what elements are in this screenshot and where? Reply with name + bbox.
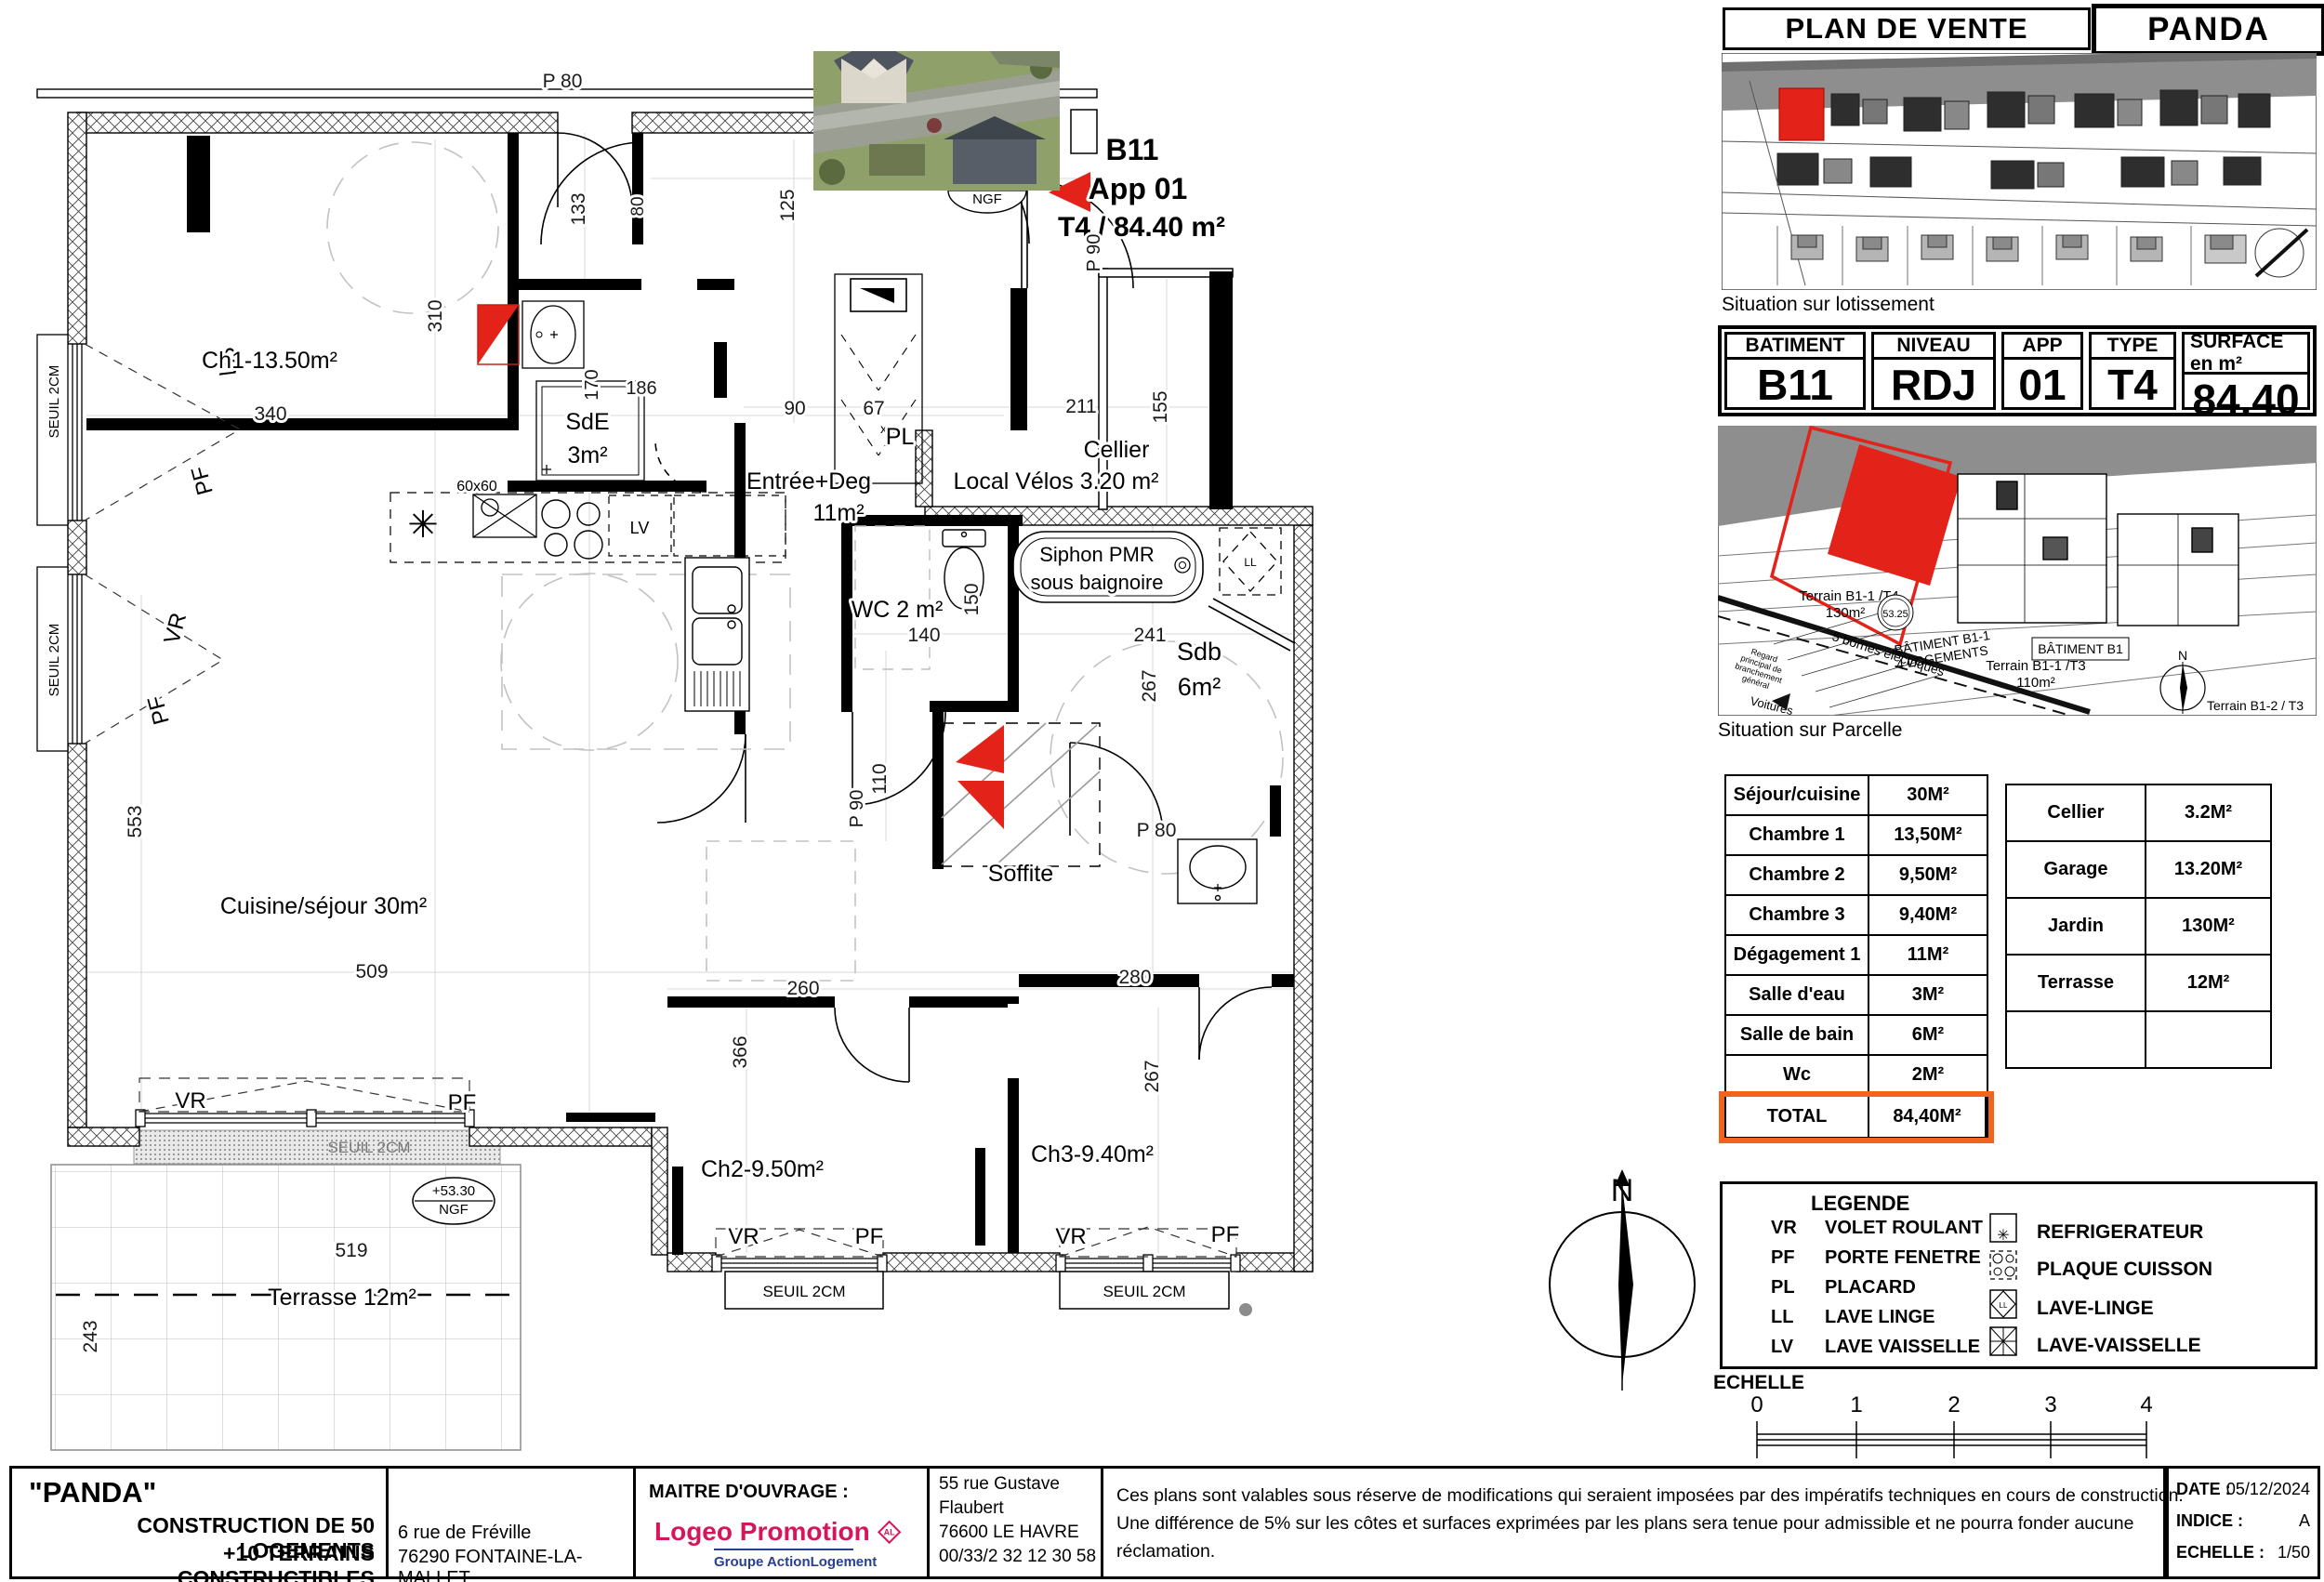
situation-lotissement-map	[1722, 53, 2317, 290]
table-row: Jardin130M²	[2007, 899, 2270, 956]
scale-tick: 1	[1850, 1392, 1862, 1417]
sheet-title-text: PLAN DE VENTE	[1785, 12, 2027, 46]
apartment-number: App 01	[1089, 172, 1188, 205]
ch1-label: Ch1-13.50m²	[202, 348, 337, 374]
ll-label: LL	[1244, 556, 1257, 569]
seuil-label-west2: SEUIL 2CM	[46, 624, 62, 697]
sink-60x60-icon	[473, 494, 536, 537]
legend-label: VOLET ROULANT	[1825, 1218, 1983, 1239]
vr-label: VR	[728, 1224, 759, 1249]
row-value: 6M²	[1869, 1016, 1987, 1054]
legend-title: LEGENDE	[1811, 1192, 1909, 1216]
seuil-label-ch2: SEUIL 2CM	[762, 1283, 845, 1300]
sde-label: SdE	[565, 409, 609, 435]
disclaimer-line2: Une différence de 5% sur les côtes et su…	[1116, 1513, 2133, 1535]
legend-code: PF	[1771, 1247, 1795, 1269]
soffite-arrow-icon	[956, 725, 1004, 773]
north-compass: N	[1550, 1169, 1695, 1391]
apartment-building: B11	[1106, 133, 1159, 166]
door-p80-top: P 80	[543, 71, 583, 92]
row-label	[2007, 1012, 2146, 1067]
legend-label: PLACARD	[1825, 1277, 1916, 1299]
cooktop-legend-icon	[1990, 1251, 2016, 1279]
exterior-walls	[37, 89, 1313, 1272]
address2-line1: 55 rue Gustave	[939, 1474, 1060, 1495]
washing-machine-icon: LL	[1220, 528, 1281, 595]
dim-186: 186	[626, 378, 656, 399]
north-letter-small: N	[2178, 648, 2187, 663]
row-label: Séjour/cuisine	[1726, 776, 1869, 814]
dim-267b: 267	[1142, 1060, 1163, 1092]
dim-211: 211	[1065, 396, 1096, 417]
scale-tick: 3	[2044, 1392, 2056, 1417]
disclaimer-cell: Ces plans sont valables sous réserve de …	[1103, 1469, 2166, 1576]
table-row: Cellier3.2M²	[2007, 785, 2270, 842]
bat-value: B11	[1727, 360, 1863, 410]
legend-code: PL	[1771, 1277, 1795, 1299]
legend-code: VR	[1771, 1218, 1797, 1239]
dim-243: 243	[80, 1320, 101, 1352]
address2-cell: 55 rue Gustave Flaubert 76600 LE HAVRE 0…	[930, 1469, 1103, 1576]
cellier-area: Local Vélos 3.20 m²	[954, 468, 1159, 494]
dim-310: 310	[425, 299, 446, 332]
dim-241: 241	[1133, 625, 1166, 646]
address2-line3: 76600 LE HAVRE	[939, 1523, 1079, 1543]
row-label: Salle d'eau	[1726, 976, 1869, 1014]
row-value: 12M²	[2146, 956, 2270, 1010]
soffite-arrow-icon	[957, 781, 1004, 829]
dim-150: 150	[961, 583, 983, 615]
dim-519: 519	[335, 1240, 367, 1261]
table-row: Chambre 113,50M²	[1726, 816, 1987, 856]
terrain1-area: 130m²	[1826, 605, 1866, 621]
cellier-label: Cellier	[1084, 437, 1150, 463]
row-value: 2M²	[1869, 1056, 1987, 1094]
batiment-table: BATIMENTB11 NIVEAURDJ APP01 TYPET4 SURFA…	[1718, 325, 2317, 416]
wc-label: WC 2 m²	[852, 597, 944, 623]
meta-cell: DATE : 05/12/2024 INDICE : A ECHELLE : 1…	[2166, 1469, 2317, 1576]
legend-code: LL	[1771, 1307, 1793, 1328]
disclaimer-line3: réclamation.	[1116, 1541, 1215, 1562]
row-label: TOTAL	[1726, 1096, 1869, 1137]
pf-label: PF	[143, 693, 175, 728]
terrace-label: Terrasse 12m²	[268, 1285, 416, 1311]
plan-de-vente-sheet: +53.30 NGF Terrasse 12m² 519 243 SEUIL 2…	[0, 0, 2324, 1582]
dishwasher-legend-icon	[1990, 1327, 2016, 1355]
row-label: Jardin	[2007, 899, 2146, 954]
row-value: 13.20M²	[2146, 842, 2270, 897]
legend-icon-label: PLAQUE CUISSON	[2037, 1259, 2212, 1281]
date-value: 05/12/2024	[2226, 1480, 2310, 1499]
row-value	[2146, 1012, 2270, 1067]
seuil-band: SEUIL 2CM	[134, 1130, 500, 1164]
door-p90-wc: P 90	[847, 790, 867, 828]
project-name: "PANDA"	[29, 1476, 156, 1509]
dim-60x60: 60x60	[456, 479, 497, 494]
indice-label: INDICE :	[2176, 1511, 2243, 1531]
dim-267: 267	[1139, 669, 1160, 702]
bat-value: 01	[2004, 360, 2080, 410]
ch2-label: Ch2-9.50m²	[701, 1156, 824, 1182]
refrigerator-icon: ✳	[407, 505, 439, 546]
dim-260: 260	[786, 978, 819, 999]
sejour-label: Cuisine/séjour 30m²	[220, 893, 427, 919]
cooktop-icon	[542, 500, 602, 559]
sde-area: 3m²	[567, 442, 607, 468]
dim-90: 90	[784, 398, 805, 419]
row-value: 30M²	[1869, 776, 1987, 814]
bat-header: BATIMENT	[1727, 335, 1863, 360]
table-row: Wc2M²	[1726, 1056, 1987, 1096]
table-row: Salle de bain6M²	[1726, 1016, 1987, 1056]
batiment-b1-label: BÂTIMENT B1	[2038, 641, 2123, 656]
indice-value: A	[2299, 1511, 2310, 1531]
dim-133: 133	[568, 192, 589, 225]
bat-header: APP	[2004, 335, 2080, 360]
table-row: Garage13.20M²	[2007, 842, 2270, 899]
row-value: 9,40M²	[1869, 896, 1987, 934]
room-labels: Ch1-13.50m² Entrée+Deg 11m² Cellier Loca…	[202, 348, 1158, 1182]
logeo-logo: Logeo PromotionAL	[654, 1517, 892, 1547]
address2-line4: 00/33/2 32 12 30 58	[939, 1547, 1096, 1567]
surfaces-table: Séjour/cuisine30M² Chambre 113,50M² Cham…	[1724, 774, 1988, 1139]
address1-line1: 6 rue de Fréville	[398, 1523, 531, 1544]
lv-label: LV	[630, 519, 650, 537]
dim-155: 155	[1150, 390, 1171, 423]
legend-icon-label: REFRIGERATEUR	[2037, 1221, 2203, 1244]
echelle-label: ECHELLE :	[2176, 1543, 2265, 1562]
table-row-total: TOTAL84,40M²	[1726, 1096, 1987, 1137]
vanity-icon	[1178, 839, 1257, 903]
caption-parcelle: Situation sur Parcelle	[1718, 719, 1902, 742]
vr-label: VR	[159, 610, 191, 646]
address-cell: 6 rue de Fréville 76290 FONTAINE-LA-MALL…	[389, 1469, 636, 1576]
entree-area: 11m²	[812, 500, 864, 526]
dim-340: 340	[254, 403, 286, 425]
bat-value: T4	[2092, 360, 2173, 410]
address2-line2: Flaubert	[939, 1498, 1004, 1519]
pf-label: PF	[448, 1090, 477, 1115]
ch3-label: Ch3-9.40m²	[1031, 1141, 1154, 1167]
table-row: Chambre 39,40M²	[1726, 896, 1987, 936]
row-label: Chambre 2	[1726, 856, 1869, 894]
legend-icons: ✳ LL	[1987, 1212, 2024, 1361]
seuil-label-west1: SEUIL 2CM	[46, 365, 62, 439]
ngf-label: NGF	[972, 191, 1002, 207]
bat-header: SURFACE en m²	[2185, 335, 2307, 375]
row-value: 3M²	[1869, 976, 1987, 1014]
bathtub-note2: sous baignoire	[1030, 571, 1163, 594]
row-value: 9,50M²	[1869, 856, 1987, 894]
door-p80-sdb: P 80	[1137, 820, 1177, 841]
legend-label: LAVE VAISSELLE	[1825, 1337, 1980, 1358]
bathroom: Siphon PMR sous baignoire LL Sdb 6m²	[1013, 528, 1281, 903]
legend-label: PORTE FENETRE	[1825, 1247, 1981, 1269]
pl-label: PL	[886, 424, 915, 450]
dim-67: 67	[863, 398, 884, 419]
bat-header: TYPE	[2092, 335, 2173, 360]
dim-509: 509	[355, 961, 388, 982]
refrigerator-legend-icon: ✳	[1990, 1214, 2016, 1244]
project-cell: "PANDA" CONSTRUCTION DE 50 LOGEMENTS +10…	[12, 1469, 389, 1576]
legend-box: LEGENDE VR VOLET ROULANT PF PORTE FENETR…	[1720, 1181, 2317, 1369]
bat-header: NIVEAU	[1874, 335, 1993, 360]
sdb-label: Sdb	[1177, 638, 1221, 666]
mo-label: MAITRE D'OUVRAGE :	[649, 1482, 849, 1503]
table-row	[2007, 1012, 2270, 1067]
table-row: Salle d'eau3M²	[1726, 976, 1987, 1016]
scale-tick: 0	[1750, 1392, 1763, 1417]
sdb-area: 6m²	[1178, 673, 1221, 701]
bat-value: RDJ	[1874, 360, 1993, 410]
dim-140: 140	[907, 625, 940, 646]
scale-tick: 4	[2140, 1392, 2152, 1417]
table-row: Séjour/cuisine30M²	[1726, 776, 1987, 816]
situation-parcelle-map: Terrain B1-1 /T4 130m² 53.25 BÂTIMENT B1…	[1718, 426, 2317, 716]
row-value: 11M²	[1869, 936, 1987, 974]
row-label: Chambre 3	[1726, 896, 1869, 934]
annex-table: Cellier3.2M² Garage13.20M² Jardin130M² T…	[2005, 784, 2272, 1069]
legend-icon-label: LAVE-VAISSELLE	[2037, 1335, 2201, 1357]
ll-glyph: LL	[2000, 1301, 2008, 1310]
washer-legend-icon: LL	[1990, 1290, 2016, 1318]
dim-170: 170	[582, 369, 602, 400]
salle-eau: SdE 3m²	[478, 301, 644, 481]
entree-label: Entrée+Deg	[746, 468, 871, 494]
terrain2-label: Terrain B1-1 /T3	[1986, 658, 2086, 674]
soffite: Soffite	[942, 723, 1100, 887]
seuil-label: SEUIL 2CM	[327, 1139, 410, 1156]
dim-553: 553	[125, 805, 146, 837]
dim-366: 366	[730, 1035, 751, 1068]
terrain3-label: Terrain B1-2 / T3	[2207, 698, 2304, 713]
project-photo	[813, 51, 1060, 191]
vr-label: VR	[175, 1088, 205, 1114]
dim-125: 125	[777, 189, 799, 221]
legend-label: LAVE LINGE	[1825, 1307, 1935, 1328]
table-row: Terrasse12M²	[2007, 956, 2270, 1012]
bat-value: 84.40	[2185, 375, 2307, 425]
pf-label: PF	[855, 1224, 884, 1249]
al-badge-icon: AL	[878, 1521, 901, 1544]
cote-label: 53.25	[1882, 609, 1908, 620]
brand-box: PANDA	[2092, 4, 2324, 56]
scale-bar: 0 1 2 3 4	[1729, 1390, 2175, 1464]
project-line3: +10 TERRAINS CONSTRUCTIBLES	[29, 1541, 375, 1582]
dim-110: 110	[869, 763, 891, 794]
row-label: Terrasse	[2007, 956, 2146, 1010]
ngf-label: NGF	[439, 1202, 469, 1218]
row-label: Wc	[1726, 1056, 1869, 1094]
caption-lotissement: Situation sur lotissement	[1722, 294, 1934, 316]
maitre-ouvrage-cell: MAITRE D'OUVRAGE : Logeo PromotionAL Gro…	[636, 1469, 930, 1576]
pf-label: PF	[1211, 1222, 1240, 1247]
scale-tick: 2	[1948, 1392, 1960, 1417]
kitchen: ✳ 60x60 LV	[390, 479, 786, 711]
kitchen-sink-icon	[685, 558, 749, 711]
highlighted-plot	[1779, 88, 1824, 140]
echelle-value: 1/50	[2278, 1543, 2310, 1562]
row-label: Salle de bain	[1726, 1016, 1869, 1054]
legend-code: LV	[1771, 1337, 1793, 1358]
table-row: Chambre 29,50M²	[1726, 856, 1987, 896]
logeo-underline	[714, 1549, 853, 1550]
door-p90-entry: P 90	[1084, 234, 1104, 272]
row-label: Dégagement 1	[1726, 936, 1869, 974]
row-value: 13,50M²	[1869, 816, 1987, 854]
address1-line2: 76290 FONTAINE-LA-MALLET	[398, 1547, 633, 1582]
table-row: Dégagement 111M²	[1726, 936, 1987, 976]
sheet-title: PLAN DE VENTE	[1723, 7, 2091, 50]
row-label: Chambre 1	[1726, 816, 1869, 854]
terrain2-area: 110m²	[2016, 675, 2054, 691]
row-value: 3.2M²	[2146, 785, 2270, 840]
pf-label: PF	[187, 464, 218, 498]
title-block: "PANDA" CONSTRUCTION DE 50 LOGEMENTS +10…	[9, 1466, 2320, 1579]
floor-plan: +53.30 NGF Terrasse 12m² 519 243 SEUIL 2…	[0, 0, 1710, 1478]
logeo-sub: Groupe ActionLogement	[714, 1554, 877, 1570]
brand-text: PANDA	[2147, 11, 2270, 48]
soffite-label: Soffite	[988, 861, 1053, 887]
legend-icon-label: LAVE-LINGE	[2037, 1298, 2154, 1320]
bathtub-note1: Siphon PMR	[1039, 543, 1155, 566]
logeo-brand-text: Logeo Promotion	[654, 1517, 870, 1546]
row-label: Cellier	[2007, 785, 2146, 840]
dim-80: 80	[628, 196, 648, 216]
dishwasher-icon: LV	[609, 495, 671, 556]
dim-280: 280	[1118, 967, 1151, 988]
apartment-type-surface: T4 / 84.40 m²	[1058, 212, 1225, 243]
row-value: 130M²	[2146, 899, 2270, 954]
disclaimer-line1: Ces plans sont valables sous réserve de …	[1116, 1485, 2184, 1507]
row-label: Garage	[2007, 842, 2146, 897]
vr-label: VR	[1055, 1224, 1086, 1249]
ngf-value: +53.30	[432, 1183, 475, 1199]
date-label: DATE :	[2176, 1480, 2231, 1499]
row-value: 84,40M²	[1869, 1096, 1987, 1137]
svg-text:✳: ✳	[1997, 1228, 2009, 1244]
seuil-label-ch3: SEUIL 2CM	[1103, 1283, 1185, 1300]
